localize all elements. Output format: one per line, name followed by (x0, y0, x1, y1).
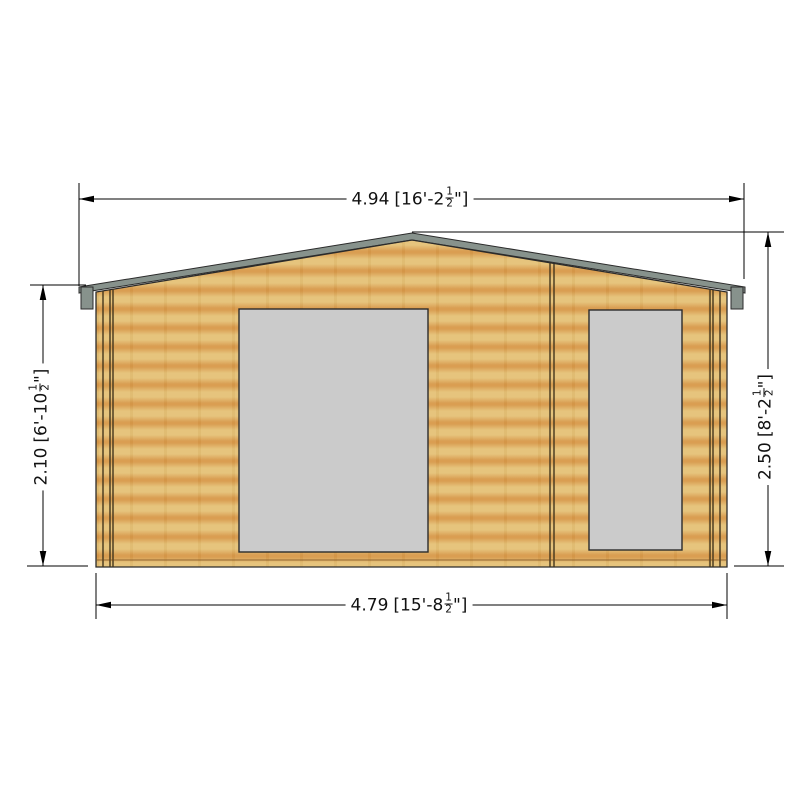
fraction: 12 (445, 186, 454, 209)
wall-panel-joint (550, 263, 554, 567)
dimension-imperial-close: "] (453, 595, 467, 615)
dimension-imperial: [16'-2 (394, 189, 444, 209)
fraction: 12 (752, 388, 775, 397)
window-small (589, 310, 682, 550)
arrow (712, 602, 727, 609)
arrow (40, 285, 47, 300)
arrow (765, 232, 772, 247)
dimension-imperial: [6'-10 (31, 393, 51, 443)
door-window-large (239, 309, 428, 552)
dimension-metric: 2.50 (755, 442, 775, 480)
elevation-drawing: 4.94[16'-212"] 2.10[6'-1012"] 2.50[8'-21… (0, 0, 800, 800)
arrow (765, 551, 772, 566)
dimension-imperial-close: "] (454, 189, 468, 209)
dimension-label-eave-height: 2.10[6'-1012"] (29, 364, 52, 491)
arrow (729, 196, 744, 203)
fraction: 12 (28, 383, 51, 392)
corner-trim-right (710, 289, 720, 567)
dimension-metric: 4.94 (352, 189, 390, 209)
dimension-imperial-close: "] (31, 369, 51, 383)
drawing-linework (0, 0, 800, 800)
dimension-imperial: [8'-2 (755, 398, 775, 437)
arrow (40, 551, 47, 566)
roof (79, 233, 745, 293)
roof-fascia-bracket-right (731, 287, 743, 309)
dimension-label-roof-width: 4.94[16'-212"] (347, 187, 474, 210)
dimension-label-ridge-height: 2.50[8'-212"] (753, 369, 776, 485)
page: { "drawing": { "subject": "garden-log-ca… (0, 0, 800, 800)
dimension-imperial-close: "] (755, 374, 775, 388)
dimension-imperial: [15'-8 (393, 595, 443, 615)
dimension-metric: 2.10 (31, 448, 51, 486)
roof-fascia-bracket-left (81, 287, 93, 309)
fraction: 12 (444, 592, 453, 615)
corner-trim-left (103, 289, 113, 567)
arrow (96, 602, 111, 609)
dimension-metric: 4.79 (351, 595, 389, 615)
arrow (79, 196, 94, 203)
dimension-label-wall-width: 4.79[15'-812"] (346, 593, 473, 616)
